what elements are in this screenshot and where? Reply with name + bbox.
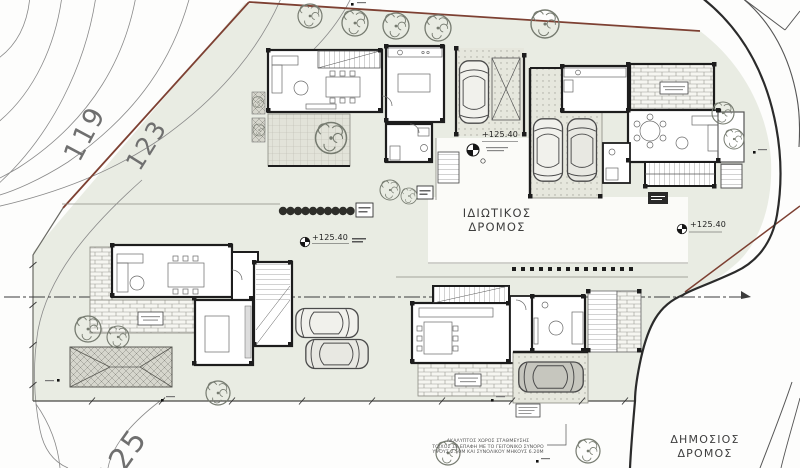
utility-box xyxy=(417,186,433,199)
car xyxy=(519,362,584,392)
car xyxy=(296,309,358,338)
label-box xyxy=(455,374,481,386)
entrance-label-box xyxy=(648,192,668,204)
public-road-line1: ΔΗΜΟΣΙΟΣ xyxy=(645,433,765,447)
label-box xyxy=(660,82,688,94)
private-road-line1: ΙΔΙΩΤΙΚΟΣ xyxy=(437,206,557,220)
label-box xyxy=(138,312,163,325)
public-road-line2: ΔΡΟΜΟΣ xyxy=(645,447,765,461)
public-road-label: ΔΗΜΟΣΙΟΣ ΔΡΟΜΟΣ xyxy=(645,433,765,461)
house-top-left xyxy=(252,44,445,166)
stairs xyxy=(256,264,290,300)
exterior-stairs xyxy=(438,152,459,183)
private-road-line2: ΔΡΟΜΟΣ xyxy=(437,220,557,234)
elevation-mark-middle: +125.40 xyxy=(312,233,348,242)
parking-note: ΑΚΑΛΥΠΤΟΣ ΧΩΡΟΣ ΣΤΑΘΜΕΥΣΗΣ ΤΟΙΧΟΣ ΣΕ ΕΠΑ… xyxy=(420,439,556,456)
site-plan-drawing: 119 123 125 ΙΔΙΩΤΙΚΟΣ ΔΡΟΜΟΣ ΔΗΜΟΣΙΟΣ ΔΡ… xyxy=(0,0,800,468)
parking-note-line3: ΥΨΟΥΣ 2.50Μ ΚΑΙ ΣΥΝΟΛΙΚΟΥ ΜΗΚΟΥΣ 6.20Μ xyxy=(420,450,556,456)
elevation-mark-right: +125.40 xyxy=(690,220,726,229)
garage-roof xyxy=(70,347,172,387)
elevation-mark-top: +125.40 xyxy=(482,130,518,139)
site-plan-linework xyxy=(0,0,800,468)
car xyxy=(306,340,368,369)
private-road-label: ΙΔΙΩΤΙΚΟΣ ΔΡΟΜΟΣ xyxy=(437,206,557,234)
car xyxy=(534,119,563,181)
car xyxy=(460,61,489,123)
car xyxy=(568,119,597,181)
utility-box xyxy=(356,203,373,217)
